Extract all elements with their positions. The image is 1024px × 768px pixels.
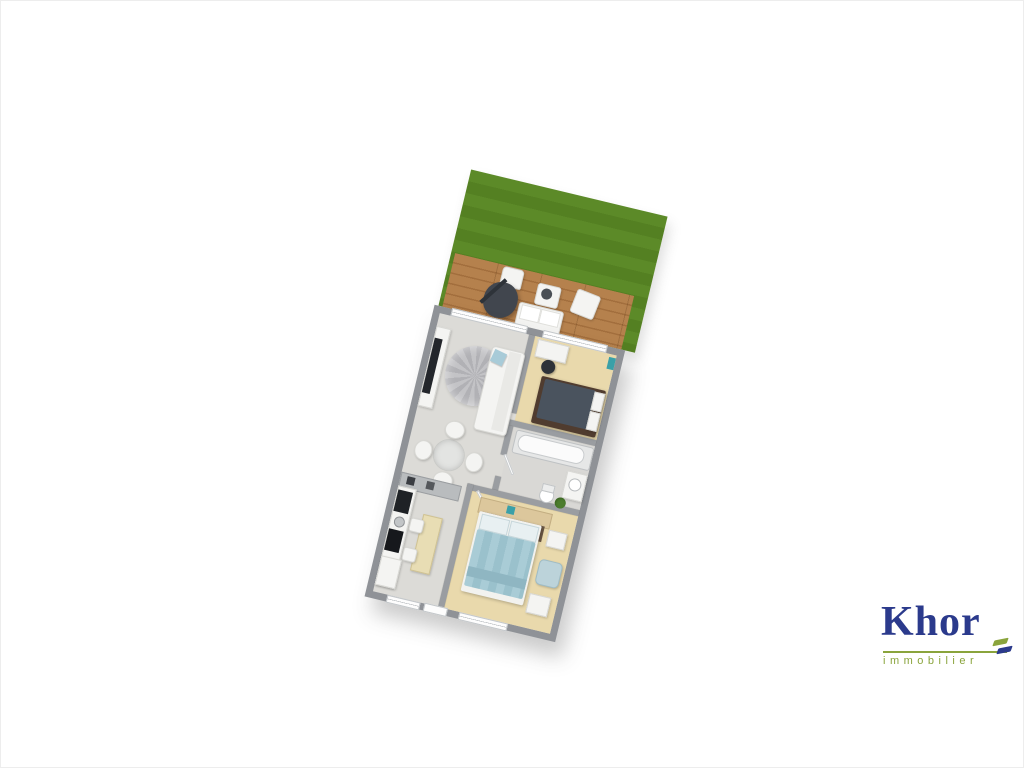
page: Khor immobilier: [0, 0, 1024, 768]
brand-underline: [883, 651, 1007, 653]
brand-tagline: immobilier: [883, 655, 978, 667]
bedroom-1-wall-shelf: [606, 357, 616, 370]
floor-plan: [365, 169, 672, 646]
leaf-icon: [996, 646, 1012, 655]
apartment: [365, 305, 626, 642]
brand-logo: Khor immobilier: [881, 607, 1017, 673]
brand-name: Khor: [881, 599, 1017, 645]
